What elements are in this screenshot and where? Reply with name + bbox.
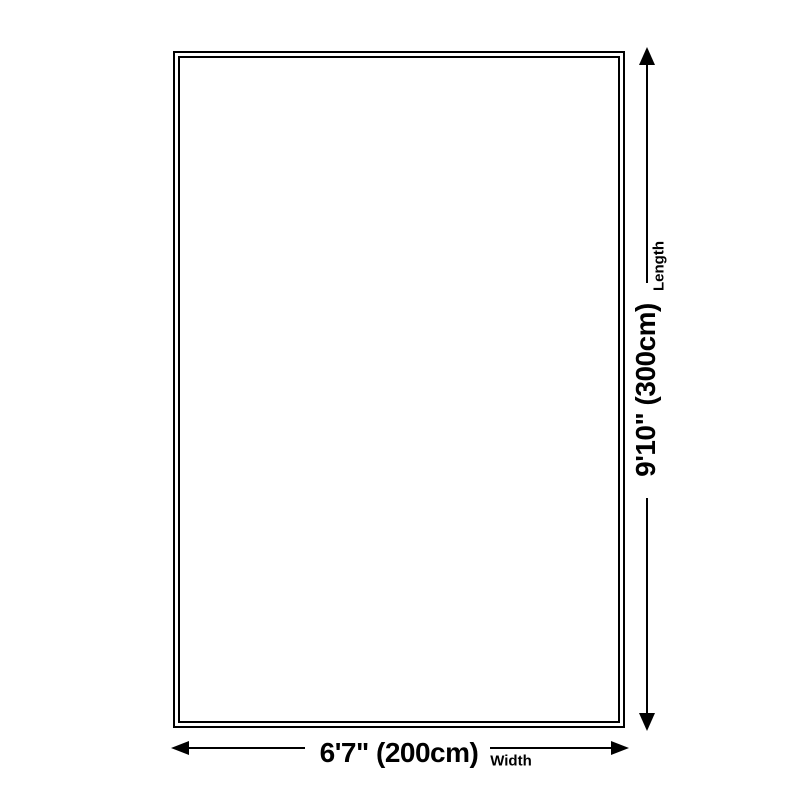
length-value: 9'10" (300cm) (632, 303, 660, 477)
rug-inner-border (178, 56, 620, 723)
arrow-right-icon (611, 741, 629, 755)
width-value: 6'7" (200cm) (320, 739, 479, 767)
arrow-down-icon (639, 713, 655, 731)
length-dimension-line-upper (646, 56, 648, 283)
width-dimension-line-left (183, 747, 305, 749)
length-dimension-line-lower (646, 498, 648, 724)
arrow-up-icon (639, 47, 655, 65)
rug-outline (173, 51, 625, 728)
width-caption: Width (490, 754, 532, 769)
rug-dimension-diagram: { "colors": { "background": "#ffffff", "… (0, 0, 800, 800)
width-dimension-line-right (490, 747, 615, 749)
arrow-left-icon (171, 741, 189, 755)
length-caption: Length (652, 241, 667, 291)
